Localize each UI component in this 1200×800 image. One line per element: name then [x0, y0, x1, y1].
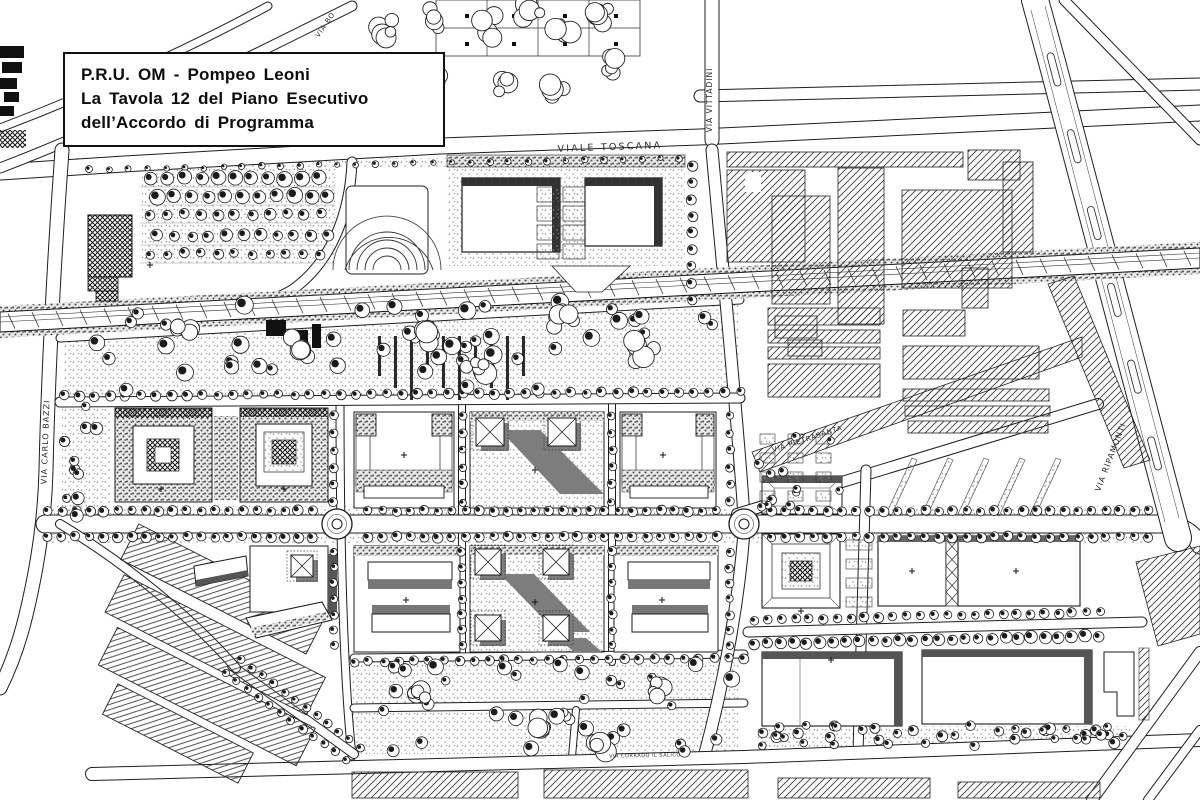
map-canvas: VIALE TOSCANA VIA VITTADINI VIA BO VIA C… [0, 0, 1200, 800]
roundabout-west [322, 509, 352, 539]
u-block-1 [354, 412, 454, 508]
south-halls [762, 648, 1149, 726]
street-label-via-corrado-il-salico: VIA CORRADO IL SALICO [609, 752, 681, 759]
roundabout-east [729, 509, 759, 539]
block-gap-garden [214, 416, 238, 500]
title-line-3: dell’Accordo di Programma [81, 111, 429, 135]
title-line-2: La Tavola 12 del Piano Esecutivo [81, 87, 429, 111]
twin-halls [878, 536, 1080, 606]
c-block-2 [614, 546, 718, 652]
street-label-via-vittadini: VIA VITTADINI [705, 68, 714, 133]
west-edge-buildings [0, 46, 26, 148]
c-block-1 [354, 546, 460, 652]
dark-tower-block [88, 215, 132, 301]
terraced-garden [333, 186, 441, 274]
title-line-1: P.R.U. OM - Pompeo Leoni [81, 63, 429, 87]
street-label-viale-toscana: VIALE TOSCANA [557, 140, 662, 155]
district-south-edge [352, 770, 1100, 798]
courtyard-block-1 [115, 408, 212, 502]
stepped-pyramid-building [762, 534, 840, 608]
u-block-2 [620, 412, 716, 508]
title-box: P.R.U. OM - Pompeo Leoni La Tavola 12 de… [63, 52, 445, 147]
corner-block [1136, 546, 1200, 646]
